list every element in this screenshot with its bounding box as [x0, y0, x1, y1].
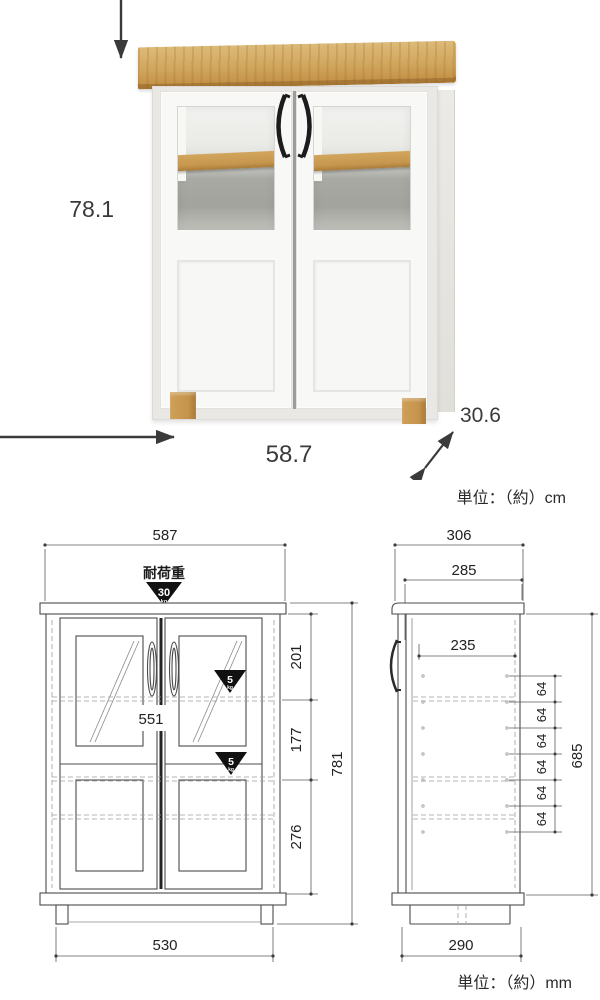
side-dim-290: 290 [400, 927, 522, 962]
depth-inner-label: 235 [450, 637, 475, 654]
side-handle-icon [391, 640, 401, 692]
front-base [40, 893, 286, 924]
depth-top-label: 306 [446, 527, 471, 544]
depth-dimension-label: 30.6 [460, 404, 501, 428]
section-top-label: 201 [288, 644, 305, 669]
height-dimension-label: 78.1 [52, 196, 114, 223]
section-mid-label: 177 [288, 727, 305, 752]
depth-arrow [425, 432, 453, 468]
base-width-label: 530 [152, 937, 177, 954]
front-handles-icon [148, 642, 179, 696]
front-section-chain: 201 177 276 [282, 612, 318, 895]
total-height-label: 781 [329, 751, 346, 776]
svg-text:551: 551 [138, 711, 163, 728]
front-dim-551: 551 [131, 705, 171, 731]
pitch-label: 64 [534, 734, 549, 748]
unit-label-mm: 単位：（約）mm [457, 974, 572, 992]
inner-height-label: 685 [569, 743, 586, 768]
base-depth-label: 290 [448, 937, 473, 954]
side-dim-285: 285 [403, 562, 523, 640]
front-carcass [40, 603, 286, 893]
photo-overlay [0, 0, 600, 480]
right-door-handle-icon [298, 95, 310, 157]
left-door-handle-icon [279, 95, 291, 157]
technical-drawing: 単位：（約）cm 単位：（約）mm 587 耐荷重 30 kg [0, 480, 600, 1000]
side-base [392, 893, 524, 924]
load-caption: 耐荷重 [143, 565, 185, 581]
side-view: 306 285 [391, 527, 598, 962]
shelf-pin-holes [422, 675, 508, 833]
load-30kg-triangle: 30 kg [146, 582, 182, 606]
unit-label-cm: 単位：（約）cm [457, 489, 566, 507]
product-photo: 78.1 58.7 30.6 [0, 0, 600, 480]
svg-text:kg: kg [227, 685, 233, 691]
side-dim-685: 685 [526, 612, 598, 896]
svg-text:30: 30 [158, 587, 170, 599]
front-width-label: 587 [152, 527, 177, 544]
pitch-label: 64 [534, 682, 549, 696]
pitch-label: 64 [534, 786, 549, 800]
side-pitch-chain: 64 64 64 64 64 64 [509, 675, 562, 834]
svg-text:kg: kg [228, 767, 234, 773]
side-dim-235: 235 [417, 637, 516, 660]
depth-inner-top-label: 285 [451, 562, 476, 579]
screenshot-root: 78.1 58.7 30.6 単位：（約）cm 単位：（約）mm 587 耐荷重… [0, 0, 600, 1000]
width-dimension-label: 58.7 [244, 441, 334, 469]
pitch-label: 64 [534, 760, 549, 774]
front-view: 587 耐荷重 30 kg [40, 527, 358, 962]
front-dim-530: 530 [54, 927, 274, 962]
section-bottom-label: 276 [288, 824, 305, 849]
pitch-label: 64 [534, 812, 549, 826]
pitch-label: 64 [534, 708, 549, 722]
